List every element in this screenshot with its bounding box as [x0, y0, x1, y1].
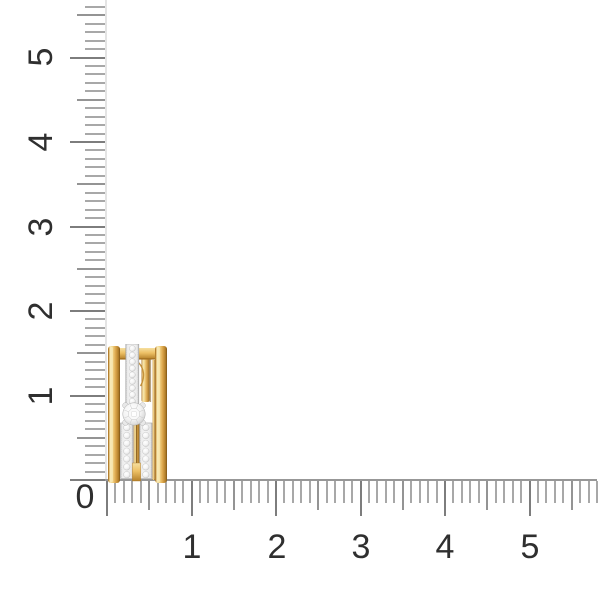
ruler-tick [191, 481, 193, 516]
ruler-tick [85, 361, 105, 363]
ruler-tick [106, 481, 108, 516]
ruler-tick [85, 276, 105, 278]
ruler-tick [85, 200, 105, 202]
ruler-tick [267, 481, 269, 503]
ruler-tick [258, 481, 260, 503]
ruler-tick [216, 481, 218, 503]
ruler-tick [503, 481, 505, 503]
ruler-tick [85, 302, 105, 304]
ruler-tick [85, 73, 105, 75]
ruler-tick [85, 40, 105, 42]
ruler-tick [85, 124, 105, 126]
earring-clasp-lever [138, 356, 151, 402]
ruler-tick [334, 481, 336, 503]
ruler-tick [85, 285, 105, 287]
earring-right-bar [155, 346, 167, 483]
ruler-tick [85, 411, 105, 413]
ruler-tick [77, 99, 105, 101]
ruler-tick [77, 437, 105, 439]
earring-inner-gold-line [153, 360, 155, 480]
ruler-tick [376, 481, 378, 503]
ruler-tick [123, 481, 125, 503]
ruler-tick [562, 481, 564, 503]
earring-lower-right-pave-strip [140, 423, 152, 479]
ruler-tick [85, 217, 105, 219]
ruler-tick [233, 481, 235, 510]
earring-lower-left-pave-strip [121, 423, 133, 479]
product-photo-earring [108, 344, 168, 483]
ruler-label: 3 [352, 530, 371, 564]
ruler-tick [85, 335, 105, 337]
ruler-tick [77, 268, 105, 270]
ruler-label: 4 [24, 133, 58, 152]
ruler-tick [85, 428, 105, 430]
ruler-tick [571, 481, 573, 510]
ruler-tick [537, 481, 539, 503]
ruler-tick [351, 481, 353, 503]
ruler-tick [85, 158, 105, 160]
ruler-tick [343, 481, 345, 503]
ruler-tick [275, 481, 277, 516]
ruler-label: 5 [521, 530, 540, 564]
ruler-tick [588, 481, 590, 503]
ruler-tick [554, 481, 556, 503]
ruler-tick [148, 481, 150, 510]
ruler-tick [486, 481, 488, 510]
ruler-tick [70, 226, 105, 228]
ruler-label: 3 [24, 218, 58, 237]
ruler-tick [85, 209, 105, 211]
ruler-tick [427, 481, 429, 503]
ruler-tick [444, 481, 446, 516]
ruler-tick [85, 82, 105, 84]
ruler-tick [70, 57, 105, 59]
ruler-label: 1 [183, 530, 202, 564]
ruler-tick [461, 481, 463, 503]
ruler-tick [300, 481, 302, 503]
ruler-tick [77, 14, 105, 16]
ruler-tick [85, 378, 105, 380]
ruler-label: 2 [268, 530, 287, 564]
ruler-tick [452, 481, 454, 503]
ruler-tick [114, 481, 116, 503]
ruler-tick [368, 481, 370, 503]
ruler-tick [85, 420, 105, 422]
earring-left-bar [108, 346, 120, 483]
ruler-tick [85, 234, 105, 236]
ruler-tick [326, 481, 328, 503]
ruler-tick [317, 481, 319, 510]
ruler-tick [85, 107, 105, 109]
ruler-tick [70, 141, 105, 143]
ruler-tick [410, 481, 412, 503]
ruler-tick [85, 175, 105, 177]
vertical-ruler-edge-line [105, 0, 107, 480]
ruler-tick [85, 90, 105, 92]
ruler-tick [85, 293, 105, 295]
ruler-tick [85, 471, 105, 473]
ruler-tick [520, 481, 522, 503]
ruler-tick [512, 481, 514, 503]
ruler-tick [402, 481, 404, 510]
ruler-tick [182, 481, 184, 503]
ruler-label: 5 [24, 48, 58, 67]
ruler-tick [85, 318, 105, 320]
ruler-tick [70, 310, 105, 312]
ruler-tick [131, 481, 133, 503]
ruler-label: 4 [436, 530, 455, 564]
ruler-tick [393, 481, 395, 503]
ruler-tick [85, 242, 105, 244]
ruler-tick [70, 395, 105, 397]
ruler-tick [165, 481, 167, 503]
ruler-tick [596, 481, 598, 503]
ruler-tick [360, 481, 362, 516]
ruler-tick [85, 445, 105, 447]
ruler-tick [85, 454, 105, 456]
ruler-tick [174, 481, 176, 503]
ruler-tick [85, 251, 105, 253]
ruler-tick [77, 352, 105, 354]
ruler-tick [579, 481, 581, 503]
ruler-tick [241, 481, 243, 503]
measurement-photo-canvas: 5 4 3 2 1 0 1 2 3 4 5 [0, 0, 600, 600]
ruler-tick [529, 481, 531, 516]
ruler-tick [85, 369, 105, 371]
ruler-tick [85, 259, 105, 261]
ruler-tick [85, 31, 105, 33]
ruler-tick [292, 481, 294, 503]
ruler-origin-label: 0 [76, 480, 95, 514]
ruler-tick [436, 481, 438, 503]
ruler-tick [85, 462, 105, 464]
ruler-tick [385, 481, 387, 503]
ruler-tick [85, 65, 105, 67]
ruler-tick [85, 133, 105, 135]
ruler-tick [85, 327, 105, 329]
ruler-label: 2 [24, 302, 58, 321]
ruler-tick [309, 481, 311, 503]
ruler-tick [469, 481, 471, 503]
ruler-tick [224, 481, 226, 503]
ruler-tick [85, 23, 105, 25]
ruler-tick [85, 166, 105, 168]
ruler-tick [283, 481, 285, 503]
ruler-tick [545, 481, 547, 503]
ruler-tick [495, 481, 497, 503]
ruler-tick [77, 183, 105, 185]
earring-center-diamond [123, 403, 146, 426]
ruler-tick [419, 481, 421, 503]
ruler-tick [85, 403, 105, 405]
ruler-tick [85, 48, 105, 50]
ruler-tick [85, 149, 105, 151]
ruler-tick [250, 481, 252, 503]
ruler-tick [85, 116, 105, 118]
ruler-tick [157, 481, 159, 503]
ruler-tick [85, 344, 105, 346]
ruler-tick [478, 481, 480, 503]
ruler-tick [199, 481, 201, 503]
earring-top-pave-strip [126, 344, 139, 406]
ruler-label: 1 [24, 387, 58, 406]
ruler-tick [207, 481, 209, 503]
ruler-tick [85, 386, 105, 388]
ruler-tick [85, 6, 105, 8]
ruler-tick [85, 192, 105, 194]
ruler-tick [140, 481, 142, 503]
